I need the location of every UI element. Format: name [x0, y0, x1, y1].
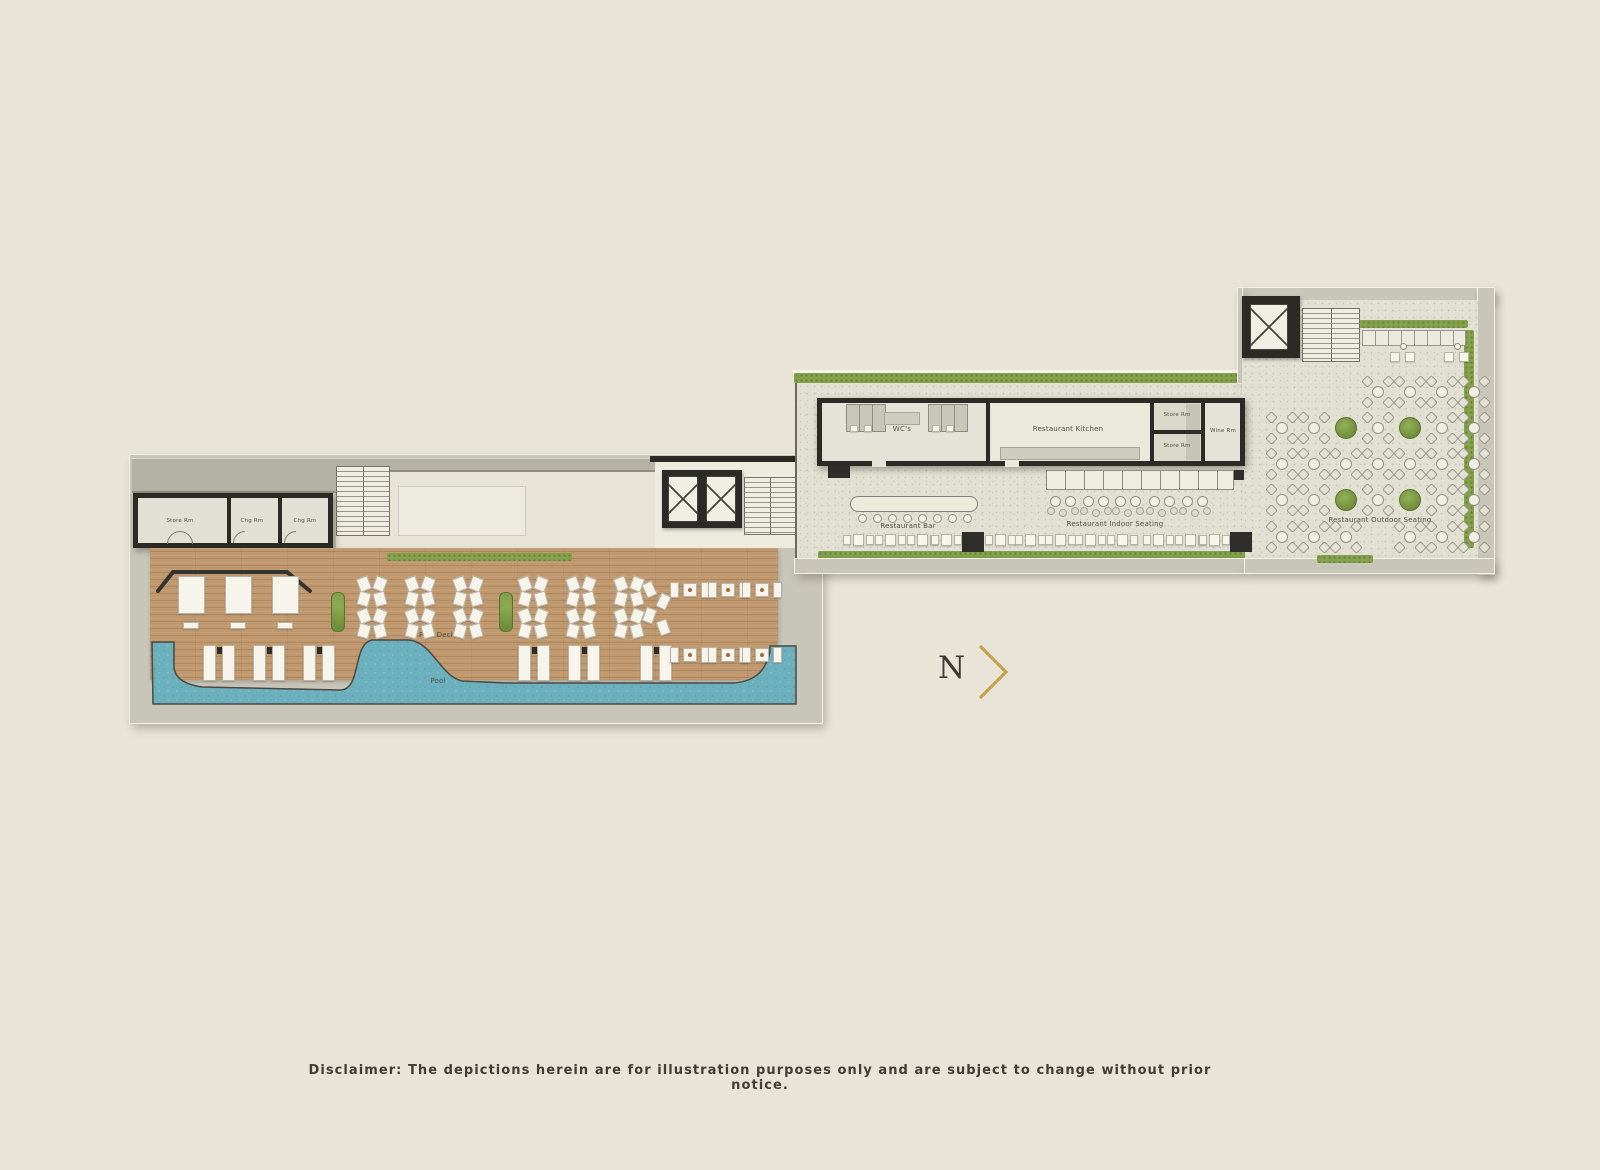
- outdoor-table: [1308, 494, 1320, 506]
- cafe-stool: [1400, 343, 1407, 350]
- lounger-table: [532, 647, 537, 654]
- outdoor-table: [1276, 531, 1288, 543]
- skylight: [398, 486, 526, 536]
- table-centerpiece: [760, 653, 764, 657]
- pool-lounger: [568, 645, 581, 681]
- deck-table-chair: [742, 647, 751, 663]
- table-centerpiece: [726, 588, 730, 592]
- dining-table: [1050, 496, 1061, 507]
- dining-chair: [1146, 507, 1154, 515]
- outdoor-table: [1468, 386, 1480, 398]
- door-opening: [872, 460, 886, 467]
- pool-lounger: [222, 645, 235, 681]
- outdoor-table: [1276, 422, 1288, 434]
- window-chair: [985, 535, 993, 545]
- room-label-wc: WC's: [893, 425, 911, 433]
- left-wing-staircase: [336, 466, 390, 536]
- outdoor-staircase: [1302, 308, 1360, 362]
- pool-lounger: [253, 645, 266, 681]
- planter-round: [1399, 489, 1421, 511]
- bar-stool: [948, 514, 957, 523]
- window-table: [1185, 534, 1196, 546]
- dining-chair: [1124, 509, 1132, 517]
- dining-chair: [1136, 507, 1144, 515]
- dining-chair: [1112, 507, 1120, 515]
- window-chair: [1045, 535, 1053, 545]
- window-chair: [931, 535, 939, 545]
- area-label-restaurant-indoor: Restaurant Indoor Seating: [1067, 520, 1164, 528]
- outdoor-table: [1308, 422, 1320, 434]
- window-table: [995, 534, 1006, 546]
- dining-chair: [1104, 507, 1112, 515]
- outdoor-table: [1372, 422, 1384, 434]
- window-table: [1153, 534, 1164, 546]
- cafe-table: [1444, 352, 1454, 362]
- window-table: [917, 534, 928, 546]
- lounger-table: [217, 647, 222, 654]
- elevator-icon: [668, 476, 698, 522]
- lounger-table: [582, 647, 587, 654]
- outdoor-elevator: [1242, 296, 1300, 358]
- outdoor-table: [1308, 531, 1320, 543]
- daybed: [178, 576, 205, 614]
- cafe-table: [1390, 352, 1400, 362]
- dining-table: [1083, 496, 1094, 507]
- window-table: [1209, 534, 1220, 546]
- outdoor-table: [1468, 494, 1480, 506]
- room-label-chg-1: Chg Rm: [241, 518, 264, 524]
- window-table: [941, 534, 952, 546]
- dining-table: [1115, 496, 1126, 507]
- dining-table: [1098, 496, 1109, 507]
- window-table: [1025, 534, 1036, 546]
- lounger-table: [267, 647, 272, 654]
- north-letter: N: [938, 650, 965, 686]
- table-centerpiece: [688, 588, 692, 592]
- table-centerpiece: [688, 653, 692, 657]
- table-centerpiece: [726, 653, 730, 657]
- planter-rect: [331, 592, 345, 632]
- outdoor-table: [1436, 422, 1448, 434]
- north-chevron-icon: [972, 642, 1014, 704]
- pool-lounger: [587, 645, 600, 681]
- deck-table-chair: [670, 582, 679, 598]
- dining-chair: [1158, 509, 1166, 517]
- window-table: [1055, 534, 1066, 546]
- window-chair: [1130, 535, 1138, 545]
- pool-lounger: [518, 645, 531, 681]
- pool-lounger: [537, 645, 550, 681]
- room-label-wine: Wine Rm: [1210, 428, 1236, 434]
- deck-table-chair: [773, 647, 782, 663]
- outdoor-table: [1436, 494, 1448, 506]
- window-chair: [1222, 535, 1230, 545]
- planter-round: [1335, 417, 1357, 439]
- dining-table: [1065, 496, 1076, 507]
- deck-table-chair: [708, 582, 717, 598]
- disclaimer-text: Disclaimer: The depictions herein are fo…: [305, 1063, 1215, 1093]
- outdoor-hedge-top: [1356, 320, 1468, 328]
- dining-chair: [1191, 509, 1199, 517]
- cafe-table: [1459, 352, 1469, 362]
- bar-counter: [850, 496, 978, 512]
- dining-table: [1182, 496, 1193, 507]
- outdoor-table: [1372, 386, 1384, 398]
- room-divider: [278, 497, 282, 544]
- dining-table: [1149, 496, 1160, 507]
- outdoor-bench-row: [1362, 330, 1466, 346]
- outdoor-table: [1404, 458, 1416, 470]
- outdoor-table: [1372, 458, 1384, 470]
- bar-stool: [873, 514, 882, 523]
- planter-round: [1399, 417, 1421, 439]
- lounger-table: [317, 647, 322, 654]
- outdoor-table: [1276, 494, 1288, 506]
- window-chair: [1107, 535, 1115, 545]
- window-chair: [1199, 535, 1207, 545]
- kitchen-pass-counter: [1046, 470, 1234, 490]
- window-table: [1117, 534, 1128, 546]
- elevator-bank: [662, 470, 742, 528]
- room-label-store-a: Store Rm: [1163, 412, 1190, 418]
- room-label-chg-2: Chg Rm: [294, 518, 317, 524]
- dining-chair: [1179, 507, 1187, 515]
- window-chair: [843, 535, 851, 545]
- window-chair: [1015, 535, 1023, 545]
- outdoor-hedge-bottom: [1317, 555, 1373, 563]
- daybed-side-table: [183, 622, 199, 629]
- window-chair: [1143, 535, 1151, 545]
- daybed-side-table: [277, 622, 293, 629]
- outdoor-table: [1436, 531, 1448, 543]
- left-wing-roof-band: [132, 458, 342, 493]
- cafe-stool: [1454, 343, 1461, 350]
- outdoor-table: [1308, 458, 1320, 470]
- outdoor-table: [1404, 531, 1416, 543]
- lounger-table: [654, 647, 659, 654]
- outdoor-table: [1468, 531, 1480, 543]
- room-label-kitchen: Restaurant Kitchen: [1033, 425, 1103, 433]
- outdoor-table: [1468, 422, 1480, 434]
- window-chair: [1175, 535, 1183, 545]
- floor-plan: Store Rm Chg Rm Chg Rm Pool Deck Pool WC…: [0, 0, 1600, 1170]
- dining-chair: [1080, 507, 1088, 515]
- window-table: [853, 534, 864, 546]
- elevator-icon: [706, 476, 736, 522]
- outdoor-table: [1436, 386, 1448, 398]
- outdoor-table: [1340, 531, 1352, 543]
- dining-table: [1164, 496, 1175, 507]
- dining-chair: [1071, 507, 1079, 515]
- window-chair: [866, 535, 874, 545]
- outdoor-table: [1276, 458, 1288, 470]
- window-table: [1085, 534, 1096, 546]
- dining-chair: [1203, 507, 1211, 515]
- dining-chair: [1092, 509, 1100, 517]
- outdoor-table: [1468, 458, 1480, 470]
- deck-table-chair: [773, 582, 782, 598]
- pool-lounger: [272, 645, 285, 681]
- window-chair: [898, 535, 906, 545]
- outdoor-table: [1404, 386, 1416, 398]
- window-table: [885, 534, 896, 546]
- dining-table: [1197, 496, 1208, 507]
- room-label-store: Store Rm: [166, 518, 193, 524]
- bar-stool: [933, 514, 942, 523]
- planter-round: [1335, 489, 1357, 511]
- floor-plan-page: Store Rm Chg Rm Chg Rm Pool Deck Pool WC…: [0, 0, 1600, 1170]
- deck-table-chair: [708, 647, 717, 663]
- bar-stool: [963, 514, 972, 523]
- planter-box: [828, 466, 850, 478]
- outdoor-table: [1340, 458, 1352, 470]
- table-centerpiece: [760, 588, 764, 592]
- indoor-parapet-bottom: [795, 559, 1245, 573]
- daybed: [225, 576, 252, 614]
- planter-box: [1230, 532, 1252, 552]
- window-chair: [1098, 535, 1106, 545]
- daybed-side-table: [230, 622, 246, 629]
- wall-divider: [986, 403, 990, 461]
- door-opening: [1005, 460, 1019, 467]
- window-chair: [1166, 535, 1174, 545]
- bar-stool: [903, 514, 912, 523]
- bar-stool: [918, 514, 927, 523]
- deck-table-chair: [742, 582, 751, 598]
- outdoor-table: [1436, 458, 1448, 470]
- pool-lounger: [640, 645, 653, 681]
- pool-lounger: [303, 645, 316, 681]
- window-chair: [1075, 535, 1083, 545]
- dining-chair: [1170, 507, 1178, 515]
- bar-stool: [888, 514, 897, 523]
- wall-divider: [1150, 430, 1205, 434]
- window-chair: [875, 535, 883, 545]
- room-divider: [227, 497, 231, 544]
- daybed: [272, 576, 299, 614]
- pool-lounger: [203, 645, 216, 681]
- deck-table-chair: [670, 647, 679, 663]
- dining-table: [1130, 496, 1141, 507]
- area-label-pool: Pool: [430, 677, 445, 685]
- area-label-restaurant-bar: Restaurant Bar: [880, 522, 935, 530]
- planter-rect: [499, 592, 513, 632]
- indoor-edge-hedge: [818, 551, 1245, 559]
- bar-stool: [858, 514, 867, 523]
- elevator-icon: [1250, 304, 1288, 350]
- planter-box: [962, 532, 984, 552]
- window-chair: [954, 535, 962, 545]
- roof-garden-strip-top: [794, 373, 1245, 383]
- room-label-store-b: Store Rm: [1163, 443, 1190, 449]
- pool-lounger: [322, 645, 335, 681]
- window-chair: [907, 535, 915, 545]
- dining-chair: [1047, 507, 1055, 515]
- cafe-table: [1405, 352, 1415, 362]
- dining-chair: [1059, 509, 1067, 517]
- connector-staircase: [744, 477, 796, 535]
- outdoor-table: [1372, 494, 1384, 506]
